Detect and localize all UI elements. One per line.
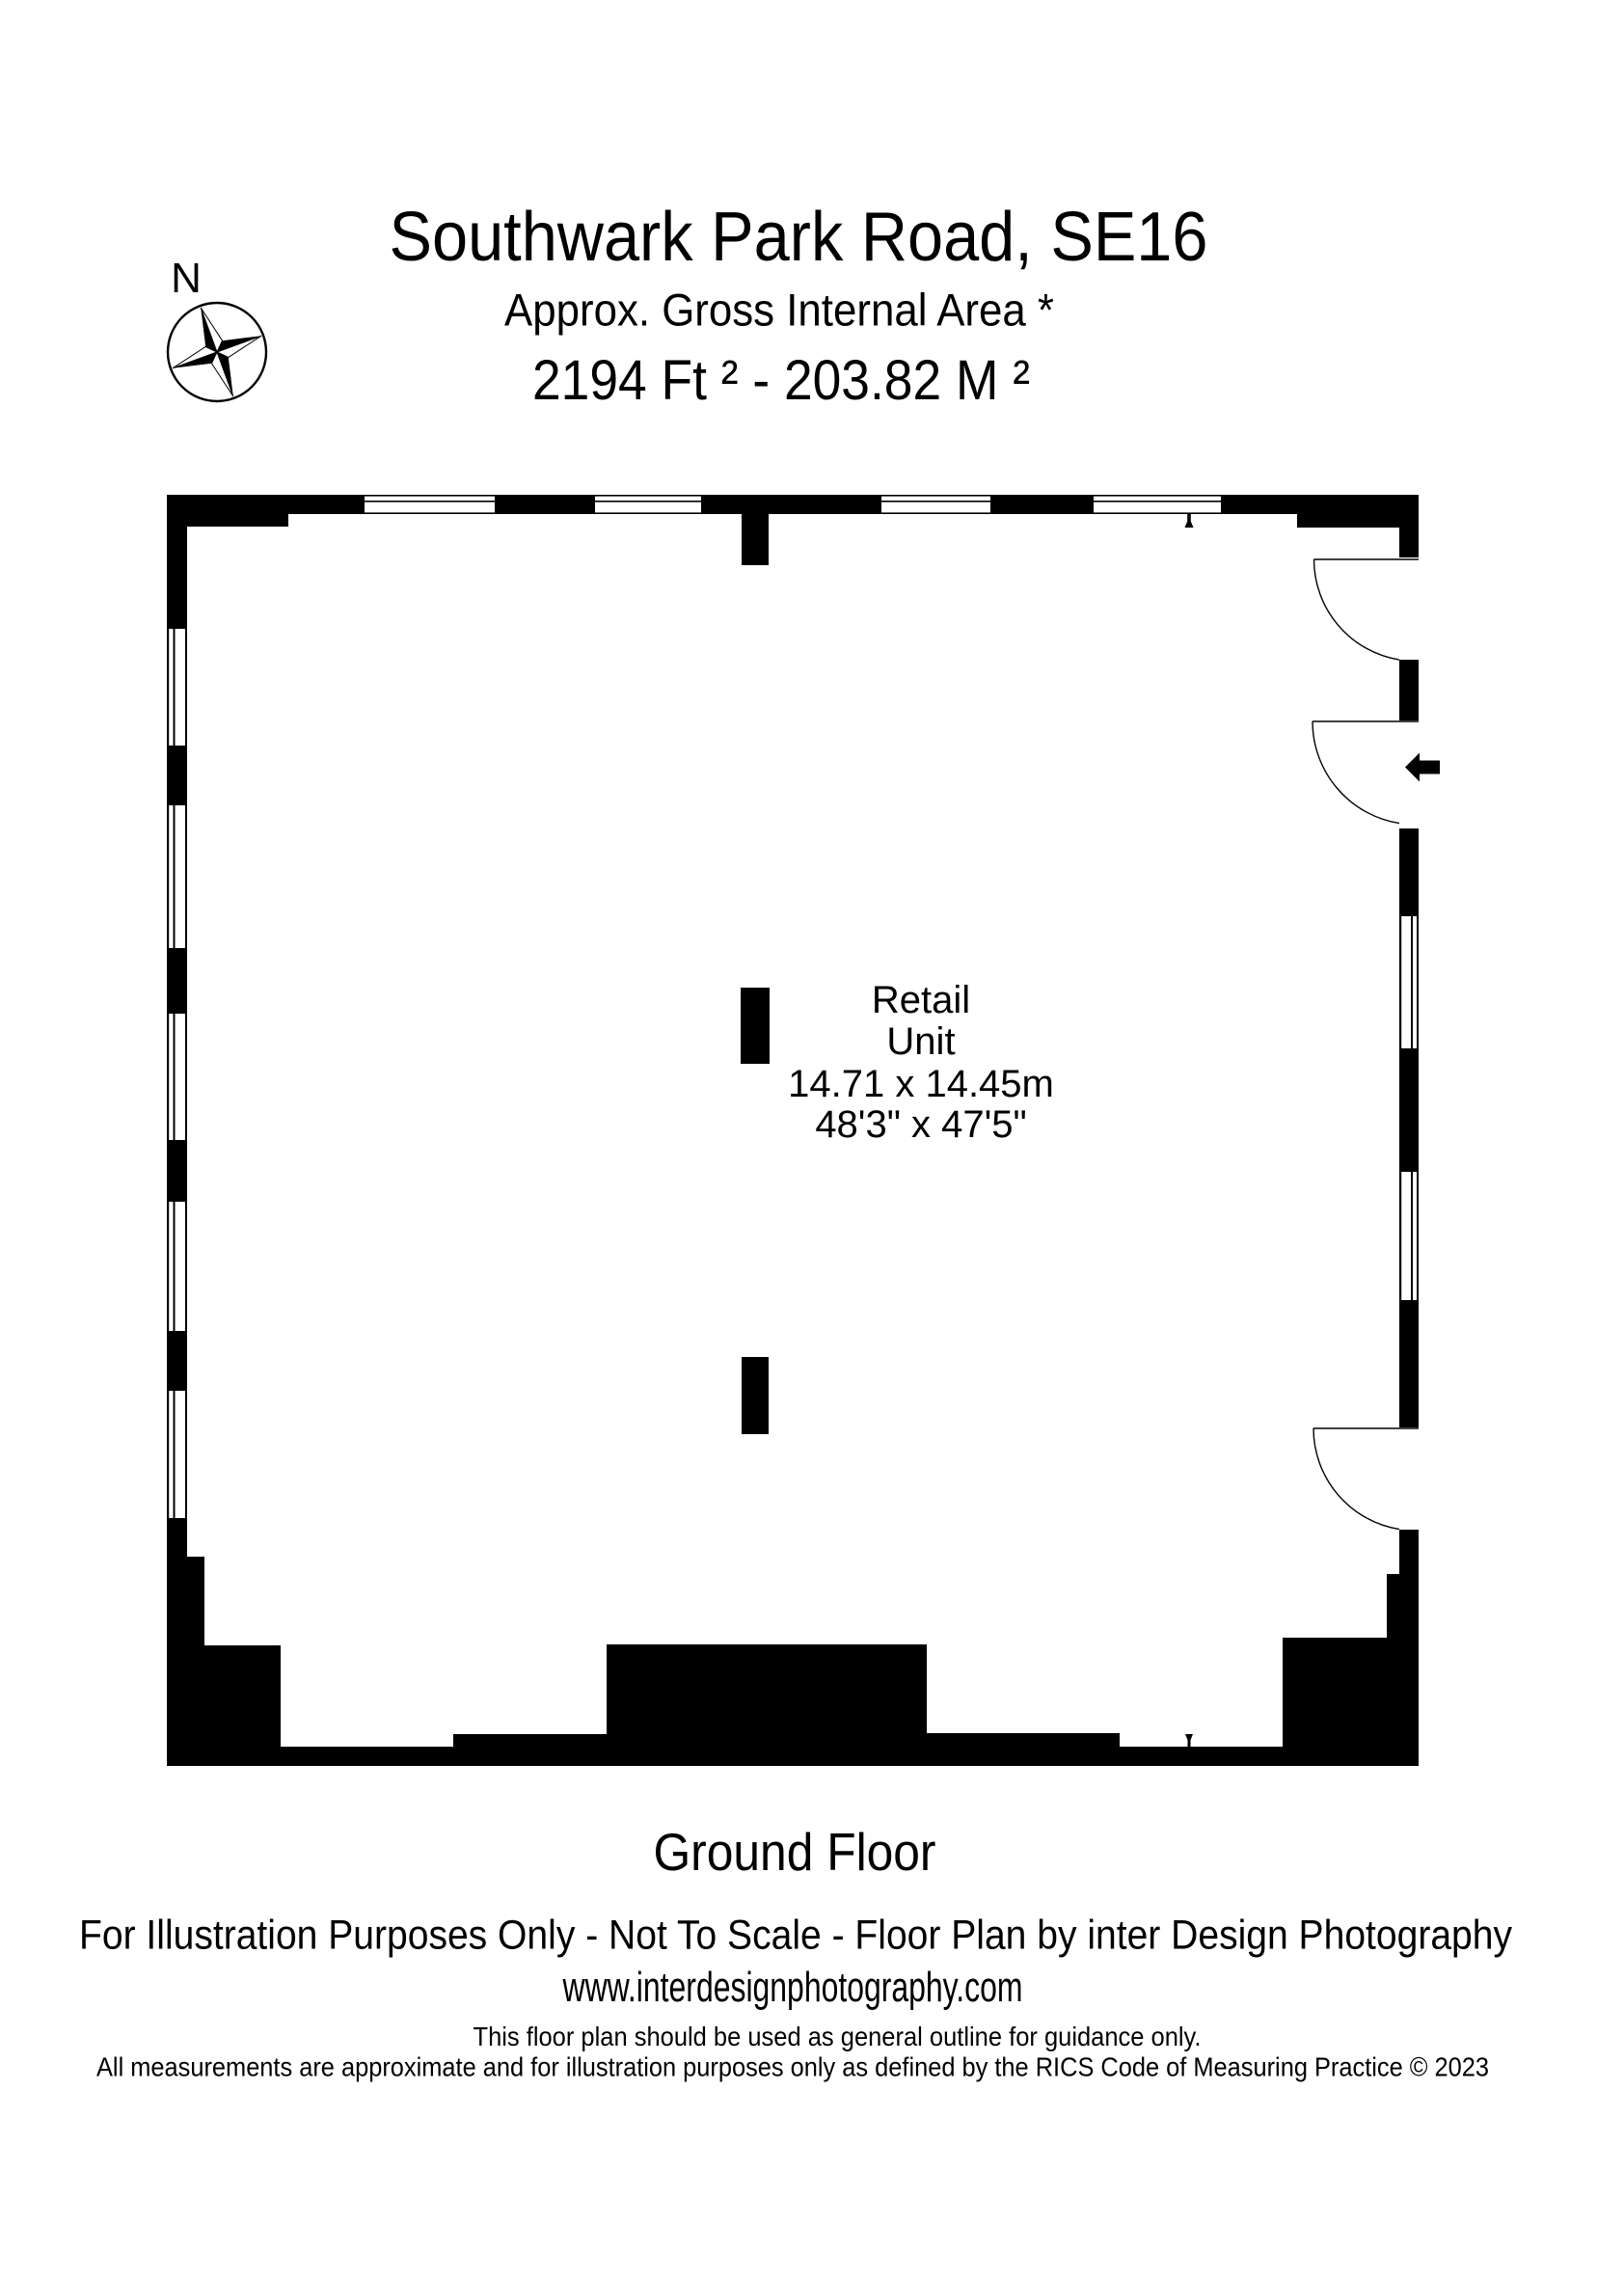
svg-text:Ground Floor: Ground Floor (654, 1823, 936, 1882)
svg-text:All measurements are approxima: All measurements are approximate and for… (96, 2052, 1489, 2082)
svg-text:Southwark Park Road, SE16: Southwark Park Road, SE16 (390, 198, 1208, 276)
svg-text:14.71 x 14.45m: 14.71 x 14.45m (788, 1063, 1054, 1105)
svg-text:This floor plan should be used: This floor plan should be used as genera… (474, 2022, 1202, 2051)
svg-text:N: N (171, 255, 202, 302)
svg-text:www.interdesignphotography.com: www.interdesignphotography.com (562, 1964, 1023, 2011)
svg-text:2194 Ft ² - 203.82 M ²: 2194 Ft ² - 203.82 M ² (532, 349, 1030, 412)
svg-text:Unit: Unit (886, 1020, 955, 1063)
svg-text:48'3" x 47'5": 48'3" x 47'5" (815, 1103, 1026, 1146)
svg-text:For Illustration Purposes Only: For Illustration Purposes Only - Not To … (79, 1913, 1512, 1959)
svg-text:Approx. Gross Internal Area *: Approx. Gross Internal Area * (504, 285, 1054, 336)
svg-text:Retail: Retail (872, 979, 970, 1021)
